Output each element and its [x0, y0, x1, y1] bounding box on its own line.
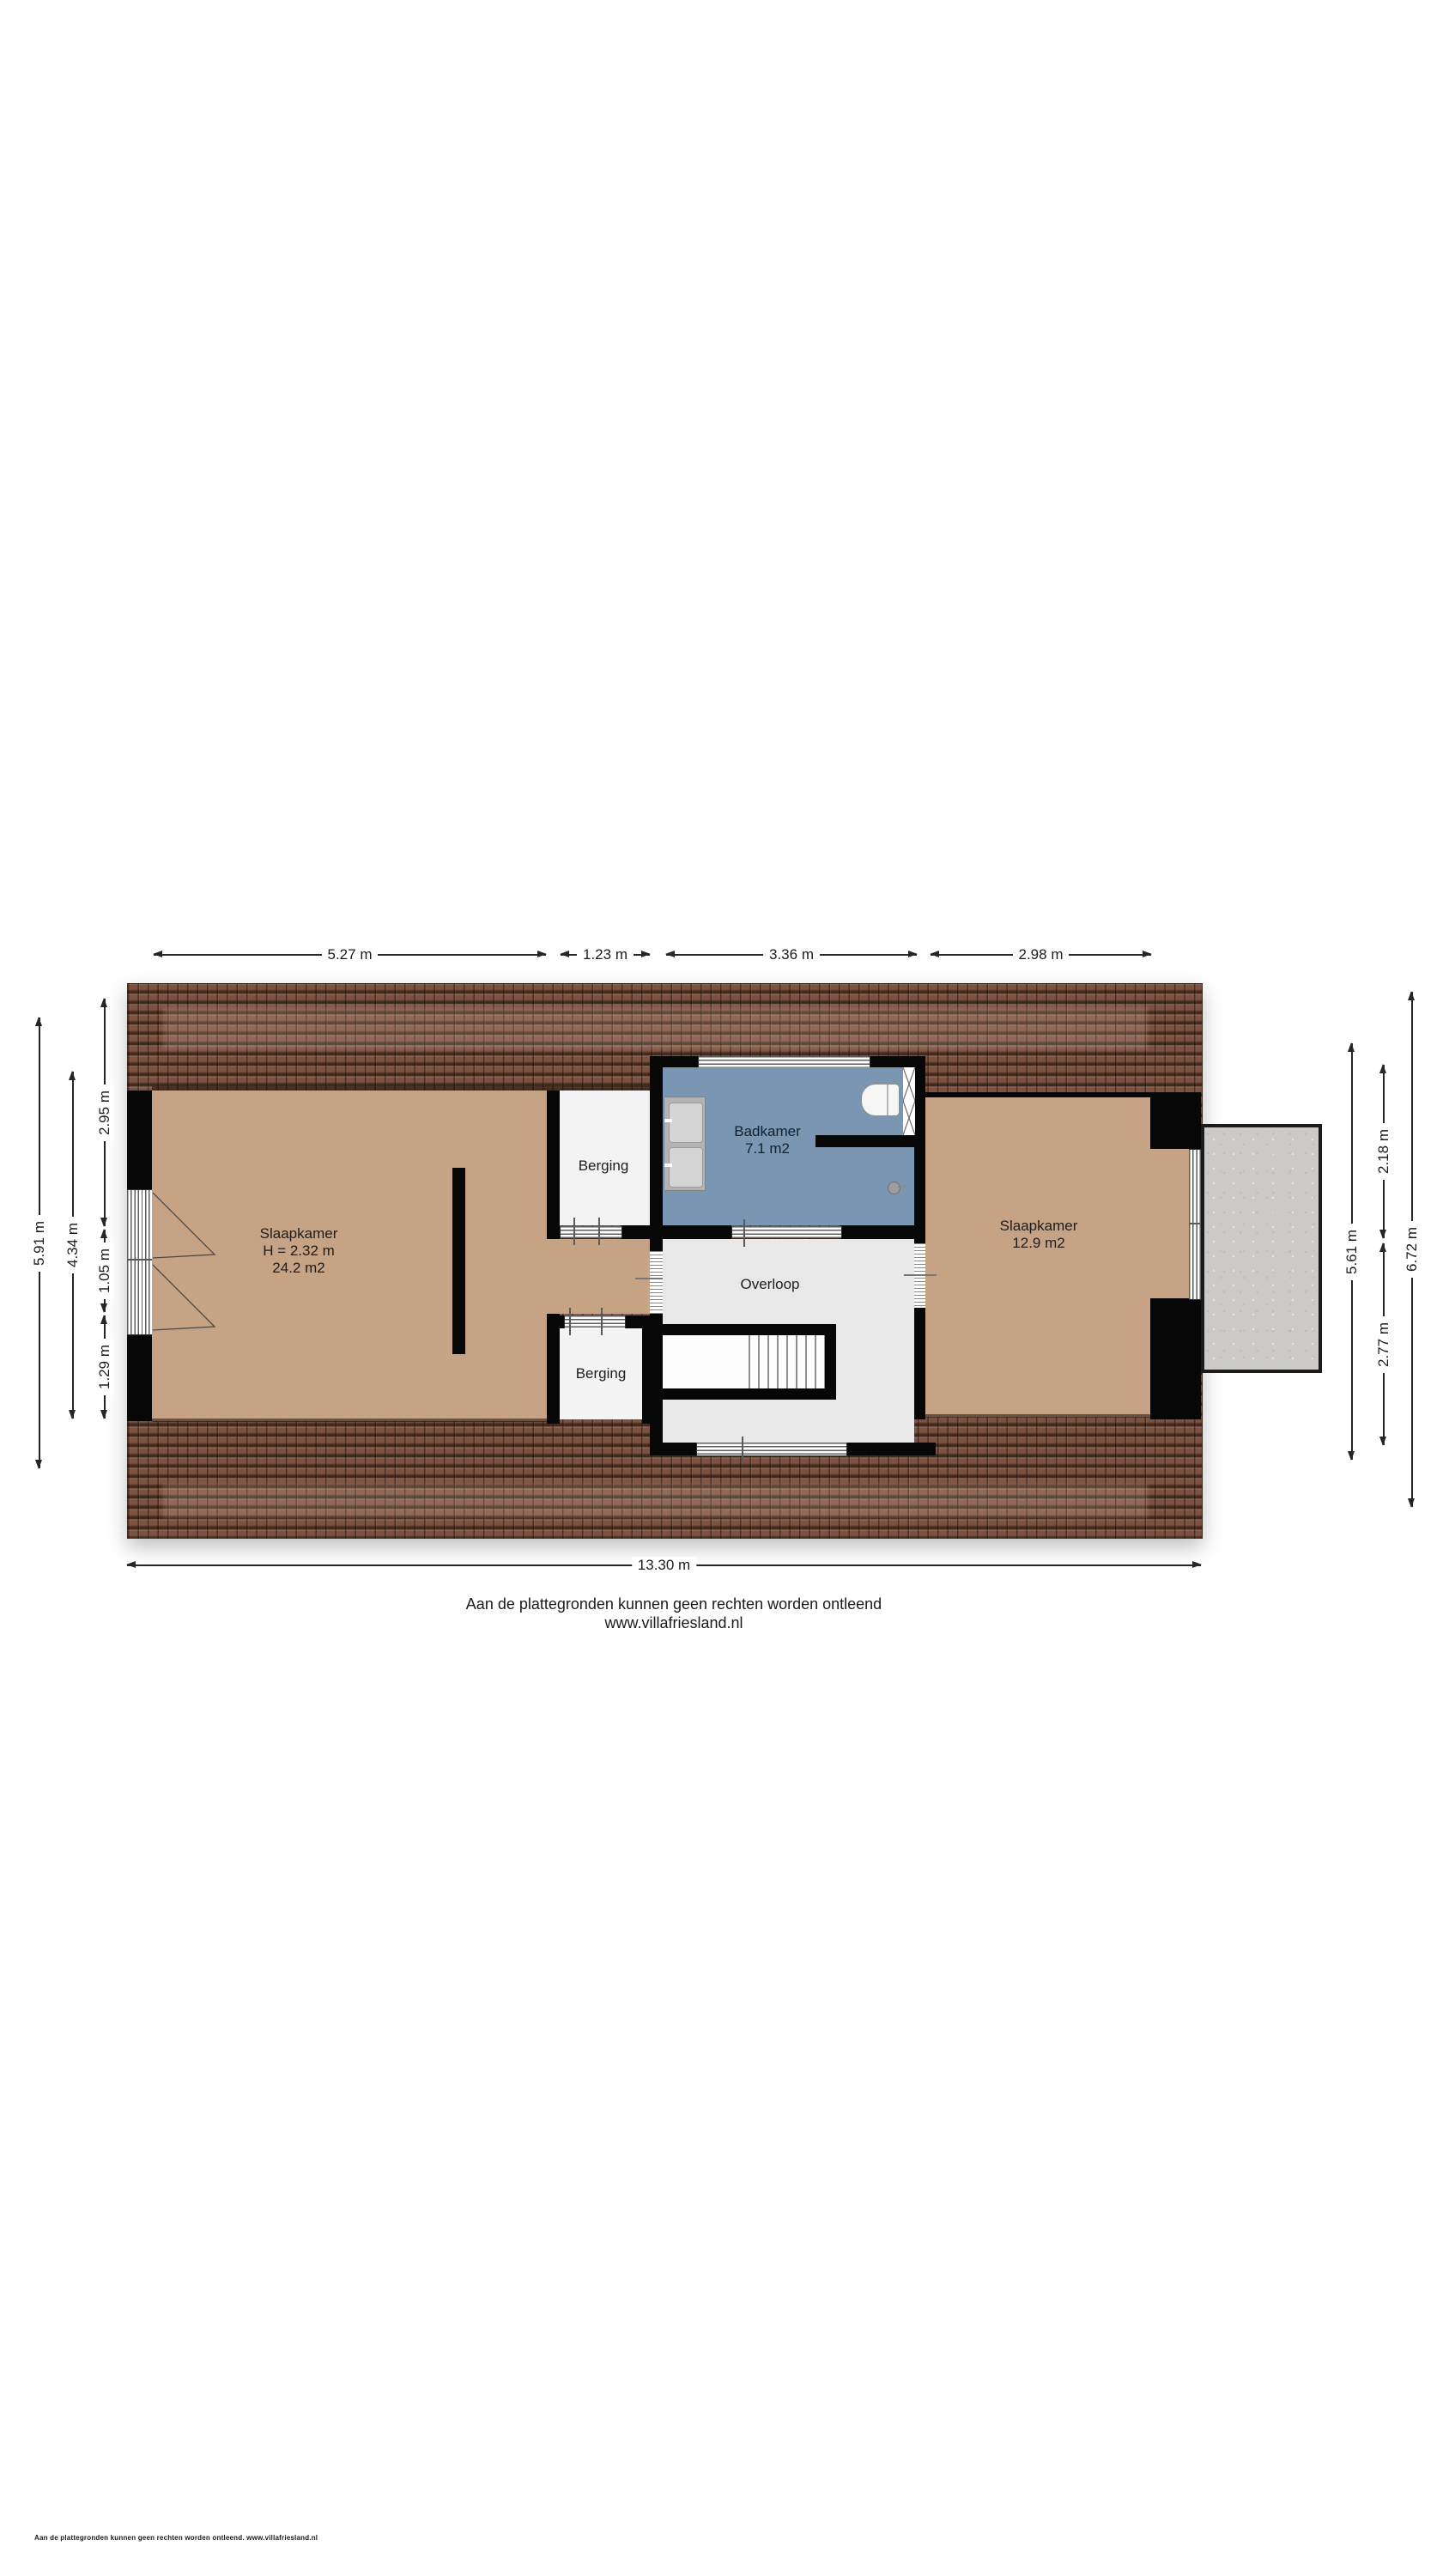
- window-right-facade: [1189, 1149, 1201, 1300]
- stair-treads: [749, 1335, 825, 1388]
- dim-left-591: 5.91 m: [29, 1018, 50, 1468]
- window-right-divider: [1189, 1223, 1201, 1224]
- window-berging-top: [560, 1226, 622, 1238]
- dim-top-123-label: 1.23 m: [577, 946, 634, 963]
- label-berging-bottom-name: Berging: [545, 1365, 657, 1382]
- label-overloop-name: Overloop: [684, 1276, 856, 1293]
- dim-top-527: 5.27 m: [154, 945, 546, 965]
- fine-print-text: Aan de plattegronden kunnen geen rechten…: [34, 2534, 318, 2542]
- disclaimer-text: Aan de plattegronden kunnen geen rechten…: [245, 1595, 1103, 1613]
- room-slaapkamer-left-passage: [547, 1239, 663, 1314]
- room-slaapkamer-right: [925, 1097, 1189, 1417]
- dim-right-561-label: 5.61 m: [1343, 1224, 1361, 1280]
- wall-bed1-stub: [452, 1168, 465, 1354]
- label-slaapkamer-right-name: Slaapkamer: [953, 1218, 1125, 1235]
- wall-overloop-bottom-a: [650, 1443, 696, 1455]
- dim-left-434: 4.34 m: [63, 1072, 83, 1419]
- toilet-seat-line: [887, 1084, 888, 1115]
- wall-badkamer-bed2-upper: [914, 1056, 925, 1243]
- window-left-facade: [127, 1189, 152, 1335]
- washbasin-tap-1: [664, 1119, 672, 1122]
- tick-badkamer-bottom: [743, 1219, 745, 1247]
- label-badkamer-name: Badkamer: [682, 1123, 853, 1140]
- website-text: www.villafriesland.nl: [245, 1614, 1103, 1632]
- dim-top-336-label: 3.36 m: [763, 946, 820, 963]
- tick-overloop-bottom: [742, 1437, 743, 1462]
- label-slaapkamer-right: Slaapkamer 12.9 m2: [953, 1218, 1125, 1252]
- washbasin-tap-2: [664, 1163, 672, 1167]
- window-badkamer-top: [698, 1056, 870, 1067]
- floorplan-page: Slaapkamer H = 2.32 m 24.2 m2 Berging Ba…: [0, 0, 1449, 2576]
- door-slaapkamer-right-mark: [904, 1274, 937, 1276]
- dim-left-295-label: 2.95 m: [96, 1084, 113, 1141]
- dim-right-672: 6.72 m: [1402, 992, 1422, 1507]
- dim-right-561: 5.61 m: [1342, 1043, 1362, 1460]
- dim-right-277-label: 2.77 m: [1375, 1316, 1392, 1373]
- tick-berging-top-1: [573, 1218, 575, 1245]
- label-slaapkamer-left-height: H = 2.32 m: [204, 1242, 393, 1260]
- dim-right-672-label: 6.72 m: [1404, 1221, 1421, 1278]
- wall-left-upper: [127, 1091, 152, 1189]
- label-slaapkamer-left-name: Slaapkamer: [204, 1225, 393, 1242]
- dim-right-218-label: 2.18 m: [1375, 1123, 1392, 1180]
- label-badkamer-area: 7.1 m2: [682, 1140, 853, 1157]
- wall-left-lower: [127, 1334, 152, 1421]
- shower-arm-icon: [898, 1186, 906, 1188]
- dim-top-123: 1.23 m: [561, 945, 650, 965]
- wall-right-block-bottom: [1150, 1298, 1201, 1419]
- tick-berging-top-2: [598, 1218, 600, 1245]
- seam-bottom-left: [152, 1419, 560, 1422]
- label-slaapkamer-left-area: 24.2 m2: [204, 1260, 393, 1277]
- dim-right-218: 2.18 m: [1373, 1065, 1394, 1238]
- tick-berging-bottom-2: [601, 1308, 603, 1335]
- shower-head-icon: [888, 1182, 900, 1194]
- door-slaapkamer-left-mark: [635, 1278, 663, 1279]
- wall-berging2-top-a: [547, 1315, 564, 1328]
- roof-ridge-highlight-top: [163, 1007, 1148, 1049]
- wall-badkamer-top-a: [663, 1056, 698, 1067]
- window-badkamer-bottom: [731, 1226, 842, 1238]
- label-slaapkamer-left: Slaapkamer H = 2.32 m 24.2 m2: [204, 1225, 393, 1277]
- dim-left-129: 1.29 m: [94, 1315, 115, 1419]
- dim-left-129-label: 1.29 m: [96, 1339, 113, 1395]
- label-berging-top-name: Berging: [548, 1157, 659, 1175]
- label-badkamer: Badkamer 7.1 m2: [682, 1123, 853, 1157]
- tick-berging-bottom-1: [569, 1308, 571, 1335]
- dim-left-105: 1.05 m: [94, 1230, 115, 1312]
- label-slaapkamer-right-area: 12.9 m2: [953, 1235, 1125, 1252]
- door-slaapkamer-left: [650, 1251, 663, 1314]
- dim-left-105-label: 1.05 m: [96, 1242, 113, 1299]
- dim-bottom-1330-label: 13.30 m: [632, 1557, 696, 1574]
- roof-ridge-highlight-bottom: [163, 1484, 1148, 1518]
- dim-right-277: 2.77 m: [1373, 1243, 1394, 1445]
- window-overloop-bottom: [696, 1443, 847, 1455]
- wall-mid-horizontal-a: [621, 1225, 731, 1239]
- door-badkamer-x-lines: [903, 1067, 915, 1135]
- dim-top-527-label: 5.27 m: [322, 946, 379, 963]
- label-overloop: Overloop: [684, 1276, 856, 1293]
- label-berging-bottom: Berging: [545, 1365, 657, 1382]
- balcony: [1201, 1124, 1322, 1373]
- dim-top-336: 3.36 m: [666, 945, 917, 965]
- window-berging-bottom: [564, 1315, 626, 1328]
- wall-right-block-top: [1150, 1097, 1201, 1149]
- wall-overloop-bottom-b: [846, 1443, 936, 1455]
- toilet-icon: [861, 1084, 900, 1116]
- dim-left-434-label: 4.34 m: [64, 1217, 82, 1273]
- dim-left-295: 2.95 m: [94, 999, 115, 1226]
- wall-mid-horizontal-b: [840, 1225, 925, 1239]
- dim-top-298: 2.98 m: [931, 945, 1151, 965]
- wall-overloop-bed2-lower: [914, 1308, 925, 1419]
- dim-top-298-label: 2.98 m: [1013, 946, 1070, 963]
- label-berging-top: Berging: [548, 1157, 659, 1175]
- dim-bottom-1330: 13.30 m: [127, 1555, 1201, 1576]
- window-left-divider: [127, 1259, 152, 1261]
- seam-top-left: [152, 1086, 650, 1091]
- wall-berging-badkamer: [650, 1056, 663, 1251]
- dim-left-591-label: 5.91 m: [31, 1215, 48, 1272]
